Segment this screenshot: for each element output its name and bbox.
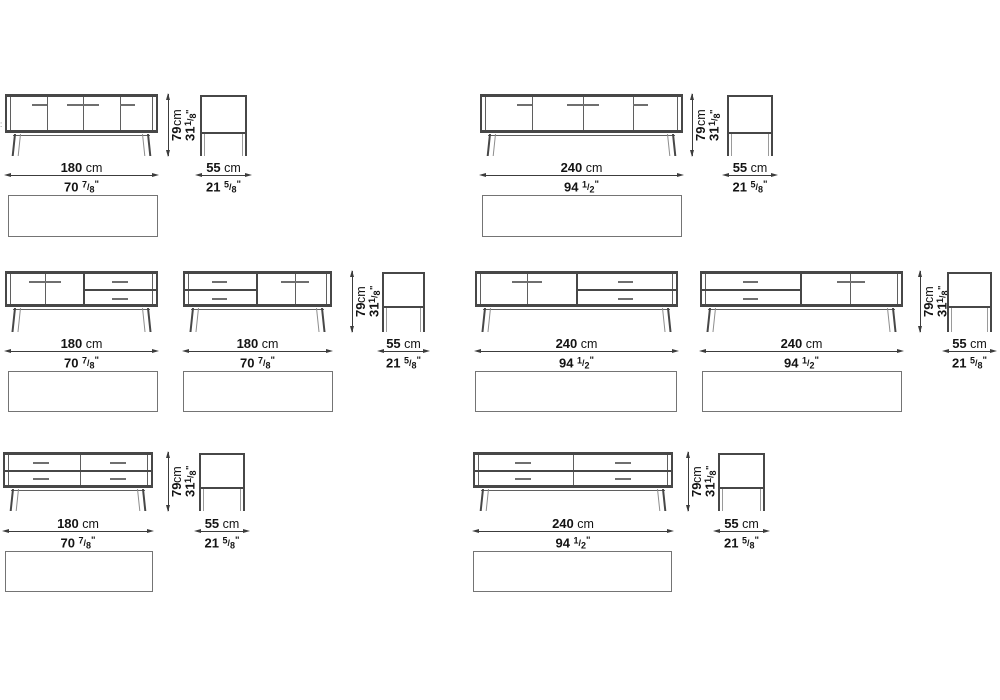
depth-dim-label-in: 21 5/8" [154,178,294,191]
front-rail [481,490,665,491]
depth-dim-label-in: 21 5/8" [152,534,292,547]
handle [517,104,532,106]
depth-dim-arrow-left [195,173,202,177]
side-view-body [727,95,773,134]
side-leg-left [382,308,387,332]
side-leg-right [240,489,245,511]
width-dim-arrow-right [326,349,333,353]
width-dim-arrow-left [699,349,706,353]
drawer-divider-line [185,289,256,291]
depth-dim-arrow-left [377,349,384,353]
width-dim-label-cm: 180 cm [188,337,328,350]
handle [615,478,631,480]
front-leg-left [706,308,716,332]
front-leg-left [480,489,489,511]
front-leg-right [142,134,151,156]
handle [112,298,128,300]
depth-dim-label-in: 21 5/8" [900,354,1000,367]
width-dim-line [8,531,148,532]
front-leg-right [316,308,326,332]
door-divider-line [850,274,851,304]
door-divider-line [527,274,528,304]
width-dim-label-in: 70 7/8" [12,354,152,367]
width-dim-line [480,351,673,352]
width-dim-arrow-right [152,349,159,353]
height-dim-line [168,452,169,511]
handle [281,281,309,283]
side-panel-line-left [485,97,486,130]
handle [743,281,758,283]
front-leg-left [487,134,496,156]
handle [120,104,135,106]
width-dim-arrow-left [4,173,11,177]
depth-dim-line [383,351,424,352]
width-dim-label-cm: 180 cm [8,517,148,530]
cabinet-body [5,94,158,133]
side-panel-line-right [677,97,678,130]
depth-dim-arrow-right [245,173,252,177]
front-leg-right [887,308,897,332]
side-leg-right [760,489,765,511]
depth-dim-arrow-right [423,349,430,353]
front-rail [13,135,150,136]
plan-view [8,195,158,237]
width-dim-label-cm: 240 cm [507,337,647,350]
section-partition-line [800,273,802,305]
handle [567,104,599,106]
width-dim-label-cm: 240 cm [732,337,872,350]
depth-dim-label-cm: 55 cm [900,337,1000,350]
handle [67,104,99,106]
handle [512,281,542,283]
handle [618,281,633,283]
handle [837,281,865,283]
side-panel-line-left [10,97,11,130]
height-dim-label-in: 31 1/8" [703,452,718,511]
width-dim-label-in: 94 1/2" [503,534,643,547]
depth-dim-arrow-right [990,349,997,353]
height-dim-line [920,271,921,332]
side-leg-right [420,308,425,332]
drawer-divider-line [475,470,671,472]
depth-dim-arrow-left [722,173,729,177]
depth-dim-label-cm: 55 cm [334,337,474,350]
depth-dim-label-cm: 55 cm [672,517,812,530]
depth-dim-line [200,531,244,532]
plan-view [8,371,158,412]
depth-dim-label-in: 21 5/8" [680,178,820,191]
width-dim-arrow-left [4,349,11,353]
width-dim-label-cm: 240 cm [512,161,652,174]
depth-dim-label-in: 21 5/8" [672,534,812,547]
handle [33,478,49,480]
front-leg-right [662,308,672,332]
depth-dim-arrow-left [942,349,949,353]
depth-dim-label-cm: 55 cm [154,161,294,174]
side-view-body [382,272,425,308]
plan-view [473,551,672,592]
width-dim-line [188,351,327,352]
height-dim-line [688,452,689,511]
drawer-divider-line [83,289,156,291]
door-divider-line [633,97,634,130]
front-leg-right [657,489,666,511]
front-leg-left [11,308,21,332]
width-dim-label-in: 70 7/8" [8,534,148,547]
front-rail [483,309,670,310]
height-dim-line [168,94,169,156]
depth-dim-line [728,175,772,176]
width-dim-arrow-left [474,349,481,353]
plan-view [702,371,902,412]
height-dim-label-in: 31 1/8" [367,271,382,332]
width-dim-line [485,175,678,176]
handle [615,462,631,464]
side-panel-line-right [897,274,898,304]
height-dim-label-in: 31 1/8" [183,452,198,511]
plan-view [183,371,333,412]
handle [33,462,49,464]
depth-dim-arrow-left [713,529,720,533]
drawer-divider-line [5,470,151,472]
handle [515,478,531,480]
width-dim-label-in: 70 7/8" [188,354,328,367]
depth-dim-label-in: 21 5/8" [334,354,474,367]
side-leg-left [199,489,204,511]
side-leg-right [242,134,247,156]
depth-dim-arrow-right [243,529,250,533]
width-dim-arrow-left [2,529,9,533]
side-leg-left [947,308,952,332]
depth-dim-line [201,175,246,176]
handle [212,281,227,283]
handle [112,281,128,283]
side-leg-left [718,489,723,511]
door-divider-line [120,97,121,130]
width-dim-label-cm: 240 cm [503,517,643,530]
front-leg-right [667,134,676,156]
depth-dim-label-cm: 55 cm [680,161,820,174]
drawer-divider-line [702,289,800,291]
front-rail [488,135,675,136]
handle [32,104,47,106]
width-dim-label-cm: 180 cm [12,337,152,350]
side-leg-left [200,134,205,156]
handle [110,462,126,464]
section-partition-line [256,273,258,305]
side-leg-right [768,134,773,156]
side-panel-line-left [10,274,11,304]
depth-dim-line [948,351,991,352]
depth-dim-arrow-right [771,173,778,177]
front-rail [708,309,895,310]
depth-dim-line [719,531,764,532]
handle [212,298,227,300]
door-divider-line [83,97,84,130]
width-dim-arrow-left [472,529,479,533]
side-panel-line-left [480,274,481,304]
front-leg-left [12,134,21,156]
width-dim-label-in: 94 1/2" [512,178,652,191]
width-dim-arrow-right [672,349,679,353]
handle [633,104,648,106]
width-dim-line [705,351,898,352]
side-view-body [200,95,247,134]
height-dim-line [692,94,693,156]
handle [110,478,126,480]
side-view-body [718,453,765,489]
front-leg-right [142,308,152,332]
side-leg-right [987,308,992,332]
handle [618,298,633,300]
side-leg-left [727,134,732,156]
cabinet-body [480,94,683,133]
width-dim-label-in: 94 1/2" [507,354,647,367]
width-dim-line [10,175,153,176]
drawer-divider-line [576,289,676,291]
height-dim-label-in: 31 1/8" [707,94,722,156]
front-leg-right [137,489,146,511]
depth-dim-arrow-right [763,529,770,533]
door-divider-line [532,97,533,130]
handle [29,281,61,283]
door-divider-line [295,274,296,304]
side-panel-line-right [326,274,327,304]
crop-artifact: : [0,121,6,131]
front-rail [11,490,145,491]
door-divider-line [47,97,48,130]
front-rail [13,309,150,310]
width-dim-arrow-left [479,173,486,177]
side-view-body [199,453,245,489]
height-dim-line [352,271,353,332]
width-dim-label-in: 70 7/8" [12,178,152,191]
plan-view [5,551,153,592]
width-dim-label-cm: 180 cm [12,161,152,174]
width-dim-line [478,531,668,532]
spec-sheet-canvas: 180 cm70 7/8"79 cm31 1/8"55 cm21 5/8"240… [0,0,1000,700]
handle [743,298,758,300]
front-leg-left [481,308,491,332]
handle [515,462,531,464]
front-rail [191,309,324,310]
front-leg-left [10,489,19,511]
side-view-body [947,272,992,308]
height-dim-label-in: 31 1/8" [183,94,198,156]
width-dim-line [10,351,153,352]
door-divider-line [45,274,46,304]
side-panel-line-right [152,97,153,130]
depth-dim-label-cm: 55 cm [152,517,292,530]
door-divider-line [583,97,584,130]
plan-view [475,371,677,412]
width-dim-arrow-left [182,349,189,353]
width-dim-label-in: 94 1/2" [732,354,872,367]
front-leg-left [189,308,199,332]
plan-view [482,195,682,237]
depth-dim-arrow-left [194,529,201,533]
